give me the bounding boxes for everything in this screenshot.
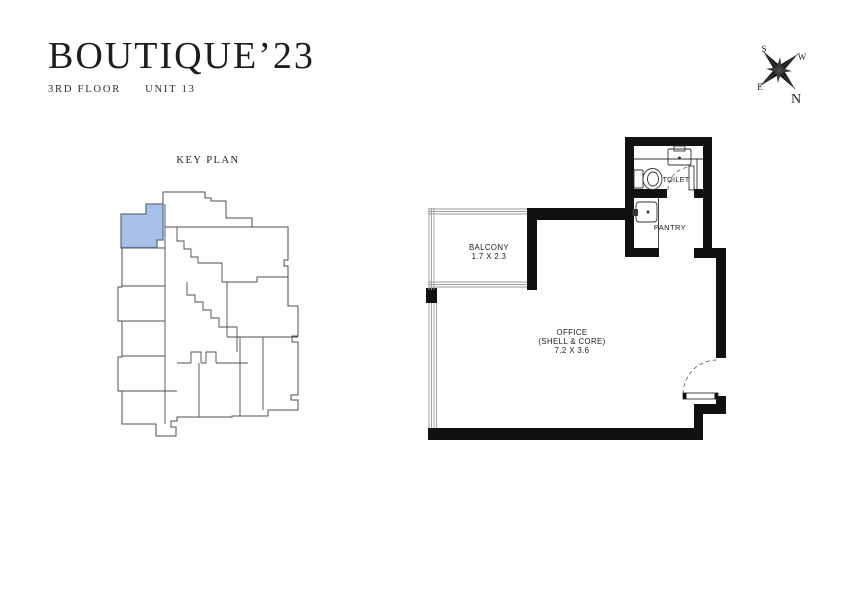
office-window-glazing (429, 303, 437, 428)
office-entry-door (683, 360, 718, 399)
toilet-basin-fixture (668, 146, 691, 165)
compass-south-label: S (761, 44, 766, 54)
brand-subtitle: 3RD FLOORUNIT 13 (48, 84, 315, 95)
floor-plan: BALCONY 1.7 X 2.3 OFFICE (SHELL & CORE) … (415, 125, 735, 445)
compass-east-label: E (757, 82, 763, 92)
office-label: OFFICE (557, 328, 588, 337)
key-plan-highlighted-unit (121, 204, 163, 248)
wall-office-right (716, 249, 726, 358)
toilet-label: TOILET (663, 175, 690, 184)
wall-balcony-right (527, 208, 537, 290)
office-door-swing (683, 360, 717, 394)
wall-toilet-bottom-left (634, 189, 667, 198)
office-sublabel: (SHELL & CORE) (538, 337, 605, 346)
balcony-dims: 1.7 X 2.3 (472, 252, 507, 261)
office-dims: 7.2 X 3.6 (555, 346, 590, 355)
office-door-leaf (683, 393, 718, 399)
wall-toilet-top (625, 137, 712, 146)
key-plan-title: KEY PLAN (108, 155, 308, 166)
compass-north-label: N (791, 92, 801, 107)
unit-label: UNIT 13 (145, 84, 196, 95)
office-door-hinge (715, 393, 719, 399)
wall-office-top (527, 208, 634, 220)
brand-block: BOUTIQUE’23 3RD FLOORUNIT 13 (48, 36, 315, 95)
wall-block-right (703, 137, 712, 249)
wall-block-left (625, 137, 634, 257)
office-door-leaf-tip (683, 393, 687, 399)
column-balcony-corner (426, 288, 437, 303)
pantry-label: PANTRY (654, 223, 686, 232)
compass-star (744, 35, 814, 105)
wall-office-bottom (428, 428, 703, 440)
compass-west-label: W (798, 52, 807, 62)
balcony-label: BALCONY (469, 243, 509, 252)
key-plan (108, 170, 308, 445)
wall-toilet-bottom-right (694, 189, 703, 198)
pantry-sink-fixture (633, 202, 657, 222)
wall-pantry-bottom-left (634, 248, 659, 257)
brand-title: BOUTIQUE’23 (48, 36, 315, 78)
floor-label: 3RD FLOOR (48, 84, 121, 95)
toilet-wc-fixture (634, 169, 662, 190)
compass-rose-icon: S W E N (733, 25, 825, 115)
toilet-door-leaf (689, 166, 694, 190)
brochure-page: BOUTIQUE’23 3RD FLOORUNIT 13 S W E N KEY… (0, 0, 841, 595)
